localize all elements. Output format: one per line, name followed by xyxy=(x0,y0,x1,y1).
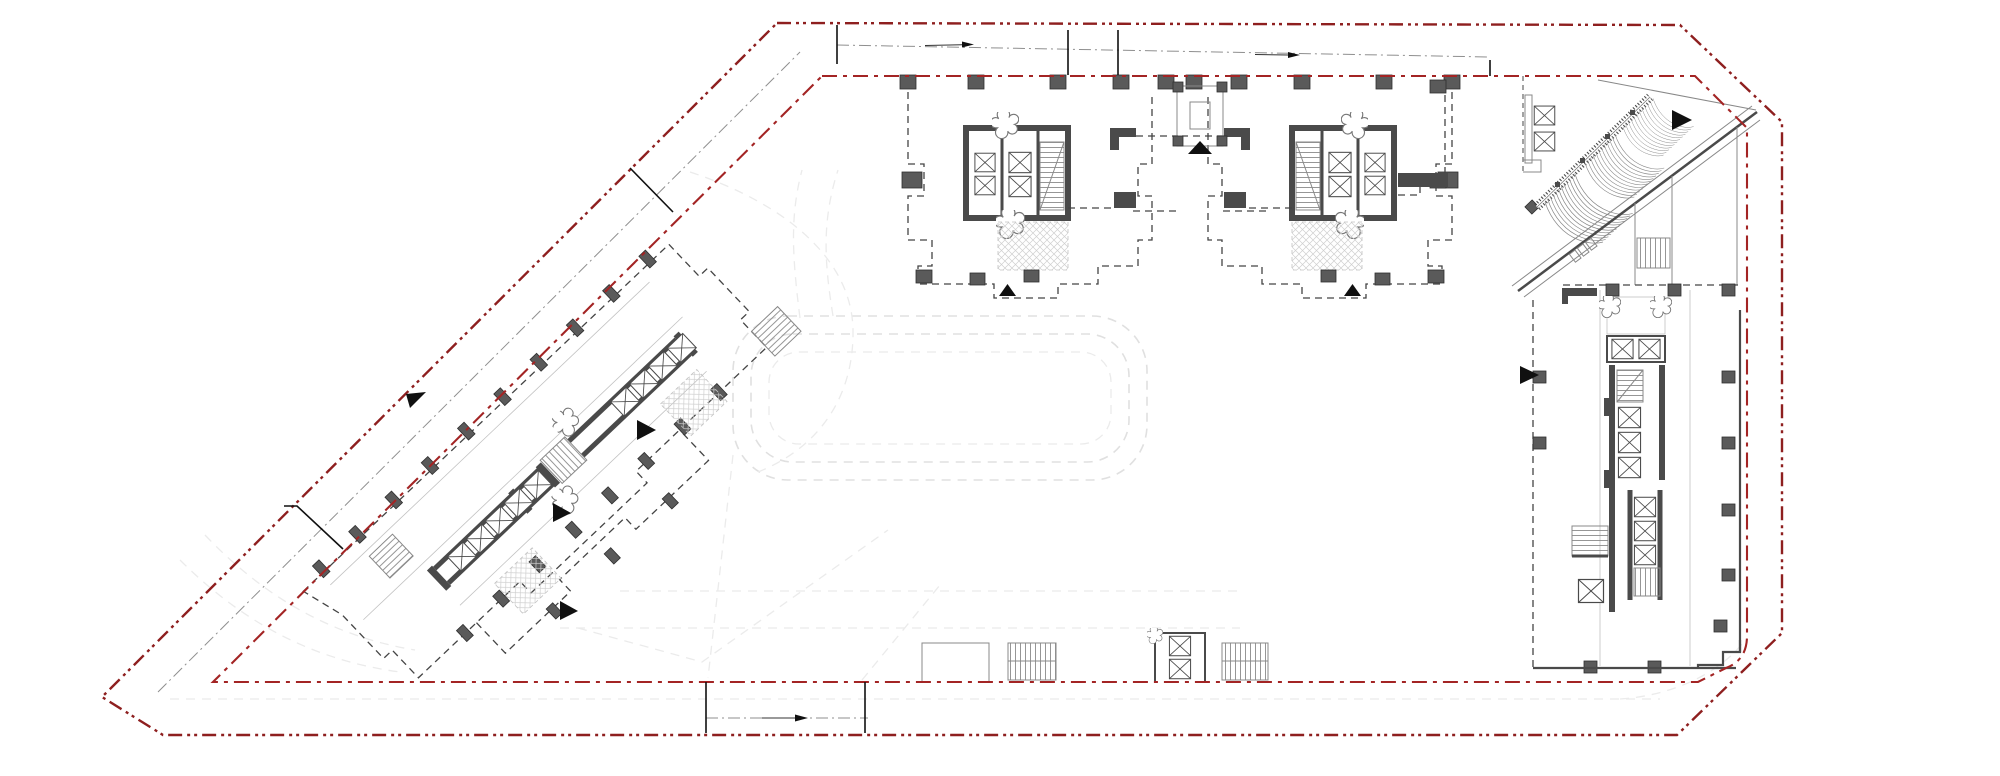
floor-plan-canvas xyxy=(0,0,2000,776)
site-plan-drawing xyxy=(0,0,2000,776)
diagonal-slab-building xyxy=(295,211,829,732)
south-service-blocks xyxy=(922,626,1268,681)
road-connector-arcs xyxy=(170,170,1745,699)
internal-loop-road xyxy=(733,316,1147,480)
between-towers-stair xyxy=(1173,82,1227,154)
tower-core-west xyxy=(900,75,1178,298)
